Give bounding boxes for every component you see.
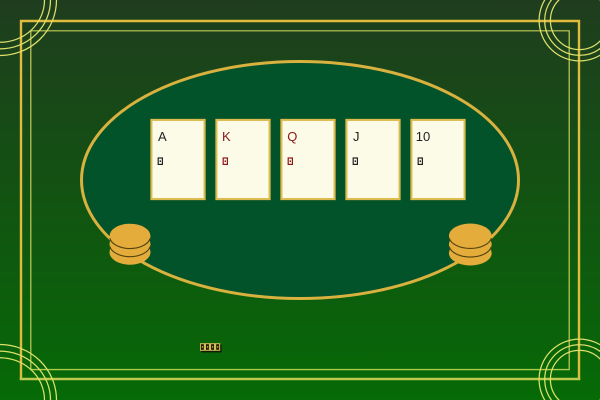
- svg-text:K: K: [222, 129, 231, 144]
- svg-text:Q: Q: [287, 129, 297, 144]
- svg-text:A: A: [158, 129, 167, 144]
- svg-text:10: 10: [416, 129, 430, 144]
- svg-text:J: J: [353, 129, 360, 144]
